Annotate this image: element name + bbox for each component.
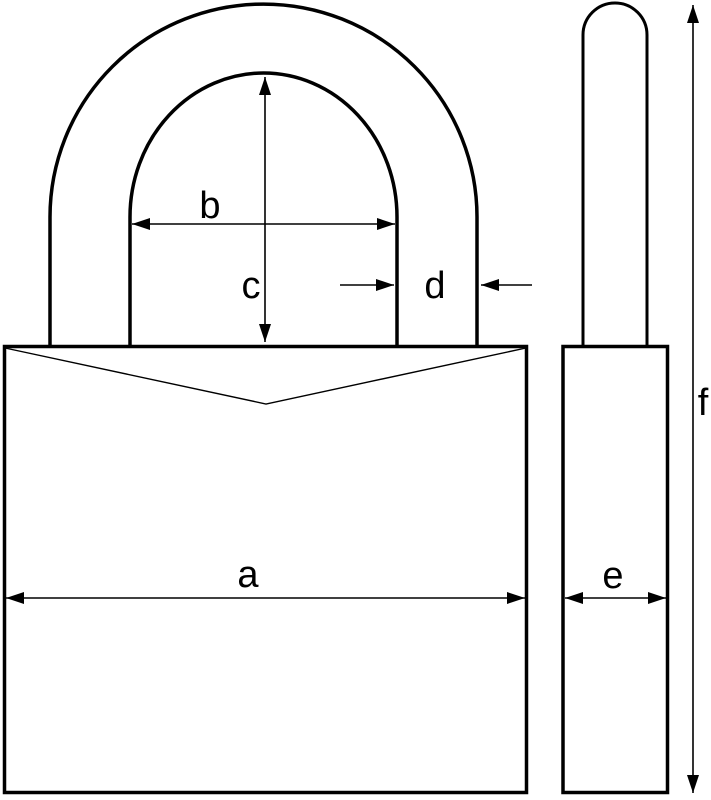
diagram-canvas: a b c d e f bbox=[0, 0, 711, 800]
shackle-side-outline bbox=[583, 3, 647, 346]
side-view bbox=[563, 3, 668, 793]
label-dimension-f: f bbox=[698, 382, 709, 424]
label-dimension-b: b bbox=[199, 185, 220, 227]
padlock-body-front bbox=[5, 347, 527, 793]
label-dimension-c: c bbox=[242, 265, 261, 307]
label-dimension-a: a bbox=[237, 554, 259, 596]
shackle-inner-outline bbox=[130, 73, 397, 347]
shackle-outer-outline bbox=[50, 4, 477, 347]
padlock-dimension-diagram: a b c d e f bbox=[0, 0, 711, 800]
label-dimension-e: e bbox=[602, 555, 623, 597]
label-dimension-d: d bbox=[424, 265, 445, 307]
